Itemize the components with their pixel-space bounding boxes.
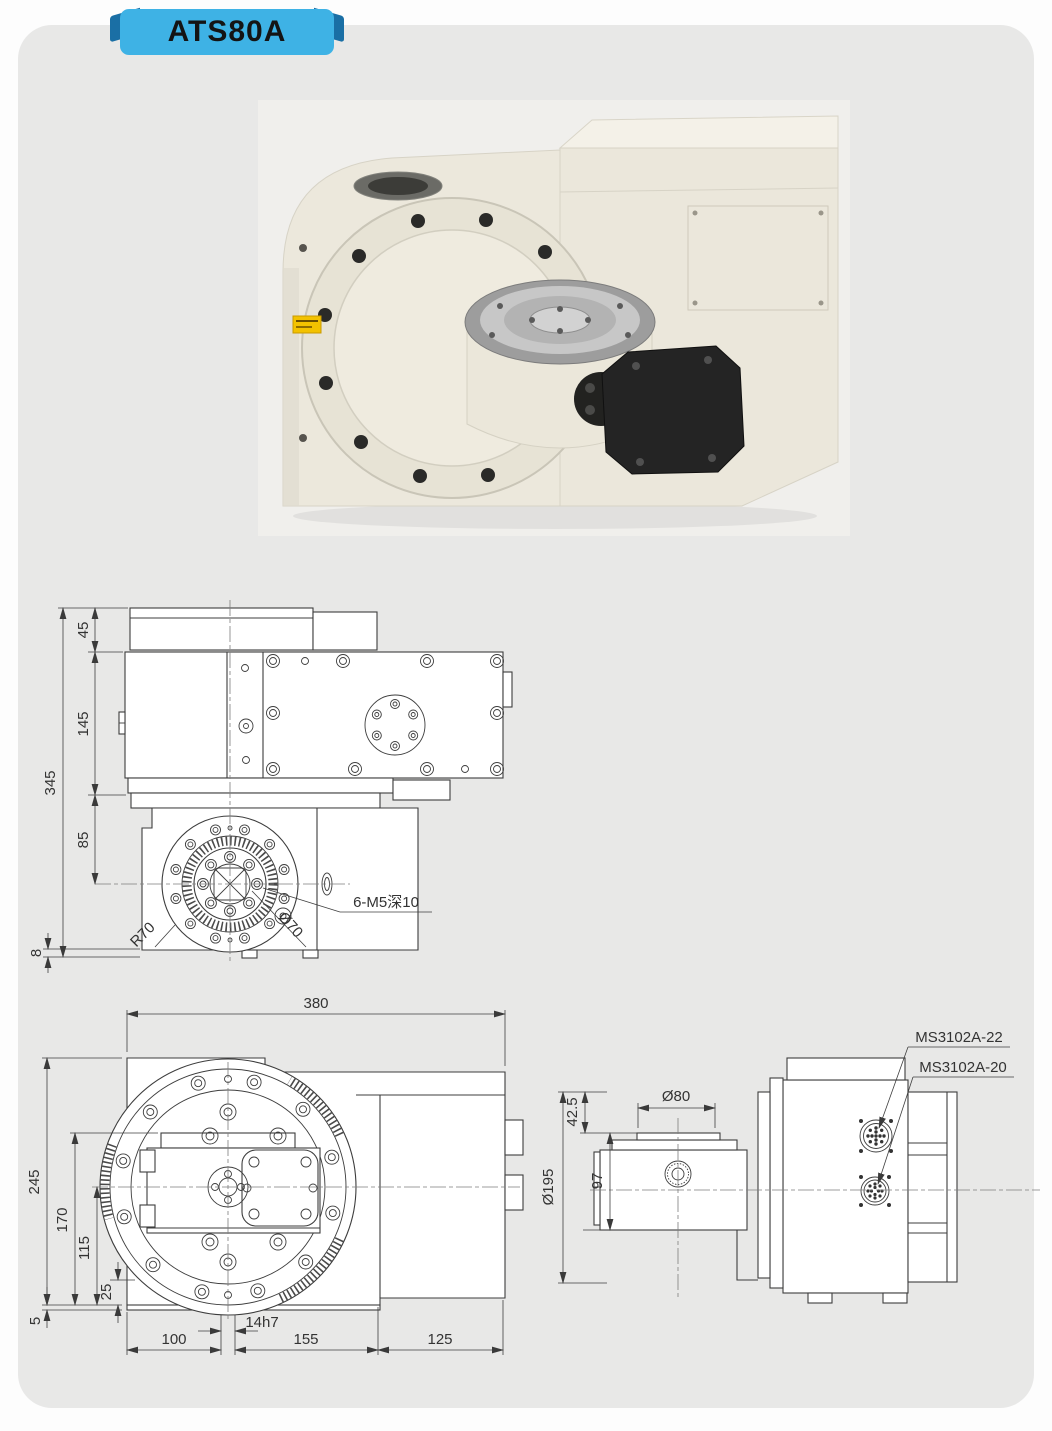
- dim-145-label: 145: [75, 711, 92, 736]
- dim-245-label: 245: [26, 1169, 43, 1194]
- dim-345-label: 345: [42, 770, 59, 795]
- dim-155-label: 155: [293, 1331, 318, 1348]
- dim-8-label: 8: [28, 949, 45, 957]
- dim-97-label: 97: [589, 1173, 606, 1190]
- dim-125-label: 125: [427, 1331, 452, 1348]
- photo-shadow: [293, 503, 817, 529]
- dim-170-label: 170: [54, 1207, 71, 1232]
- model-badge-label: ATS80A: [168, 15, 287, 49]
- warning-label-icon: [293, 316, 321, 333]
- dim-100-label: 100: [161, 1331, 186, 1348]
- dim-115-label: 115: [76, 1236, 93, 1260]
- dim-5-label: 5: [27, 1317, 44, 1325]
- dim-14h7-label: 14h7: [245, 1314, 278, 1331]
- model-badge: ATS80A: [120, 9, 334, 55]
- connector-upper-label: MS3102A-22: [915, 1029, 1003, 1046]
- side-view-drawing: 345 45 145 85 8 6-M5深10 R70 Ø70: [28, 600, 512, 973]
- top-port-inner: [368, 177, 428, 195]
- dim-25-label: 25: [98, 1284, 115, 1301]
- black-cover-plate: [602, 346, 744, 474]
- front-view-drawing: 380 245 170 115 25 5: [26, 995, 523, 1355]
- dim-42-5-label: 42.5: [564, 1097, 581, 1126]
- right-view-drawing: Ø195 42.5 97 Ø80 MS3102A-22 MS3102A-20: [540, 1029, 1040, 1303]
- dim-195-label: Ø195: [540, 1169, 557, 1206]
- product-photo: [258, 100, 850, 536]
- tap-holes-label: 6-M5深10: [353, 894, 419, 911]
- connector-lower-label: MS3102A-20: [919, 1059, 1007, 1076]
- dim-85-label: 85: [75, 832, 92, 849]
- dim-80-label: Ø80: [662, 1088, 690, 1105]
- dim-380-label: 380: [303, 995, 328, 1012]
- dim-45-label: 45: [75, 622, 92, 639]
- datasheet-page: ATS80A: [0, 0, 1052, 1431]
